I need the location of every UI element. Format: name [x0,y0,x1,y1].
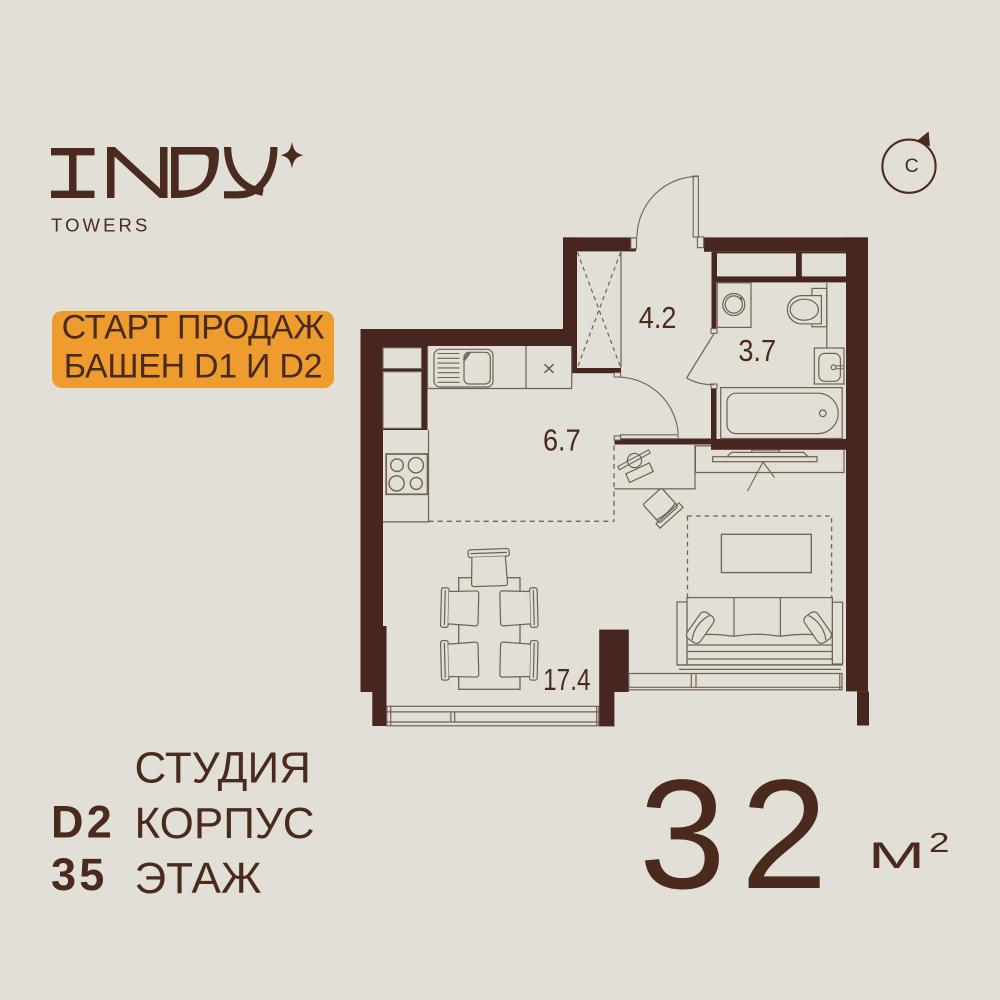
svg-text:С: С [905,155,919,177]
svg-text:17.4: 17.4 [543,662,590,696]
svg-text:3.7: 3.7 [738,334,776,368]
svg-text:СТУДИЯ: СТУДИЯ [135,744,311,793]
svg-text:35: 35 [51,849,107,900]
svg-text:D2: D2 [51,797,115,848]
svg-text:М: М [868,834,925,876]
svg-text:КОРПУС: КОРПУС [135,799,315,848]
svg-text:6.7: 6.7 [543,424,581,458]
svg-text:СТАРТ ПРОДАЖ: СТАРТ ПРОДАЖ [62,309,325,347]
svg-text:ЭТАЖ: ЭТАЖ [135,854,262,903]
svg-text:2: 2 [929,826,950,858]
svg-text:TOWERS: TOWERS [51,215,150,236]
svg-text:БАШЕН D1 И D2: БАШЕН D1 И D2 [64,348,322,386]
svg-text:4.2: 4.2 [639,301,677,335]
svg-text:32: 32 [639,748,843,922]
